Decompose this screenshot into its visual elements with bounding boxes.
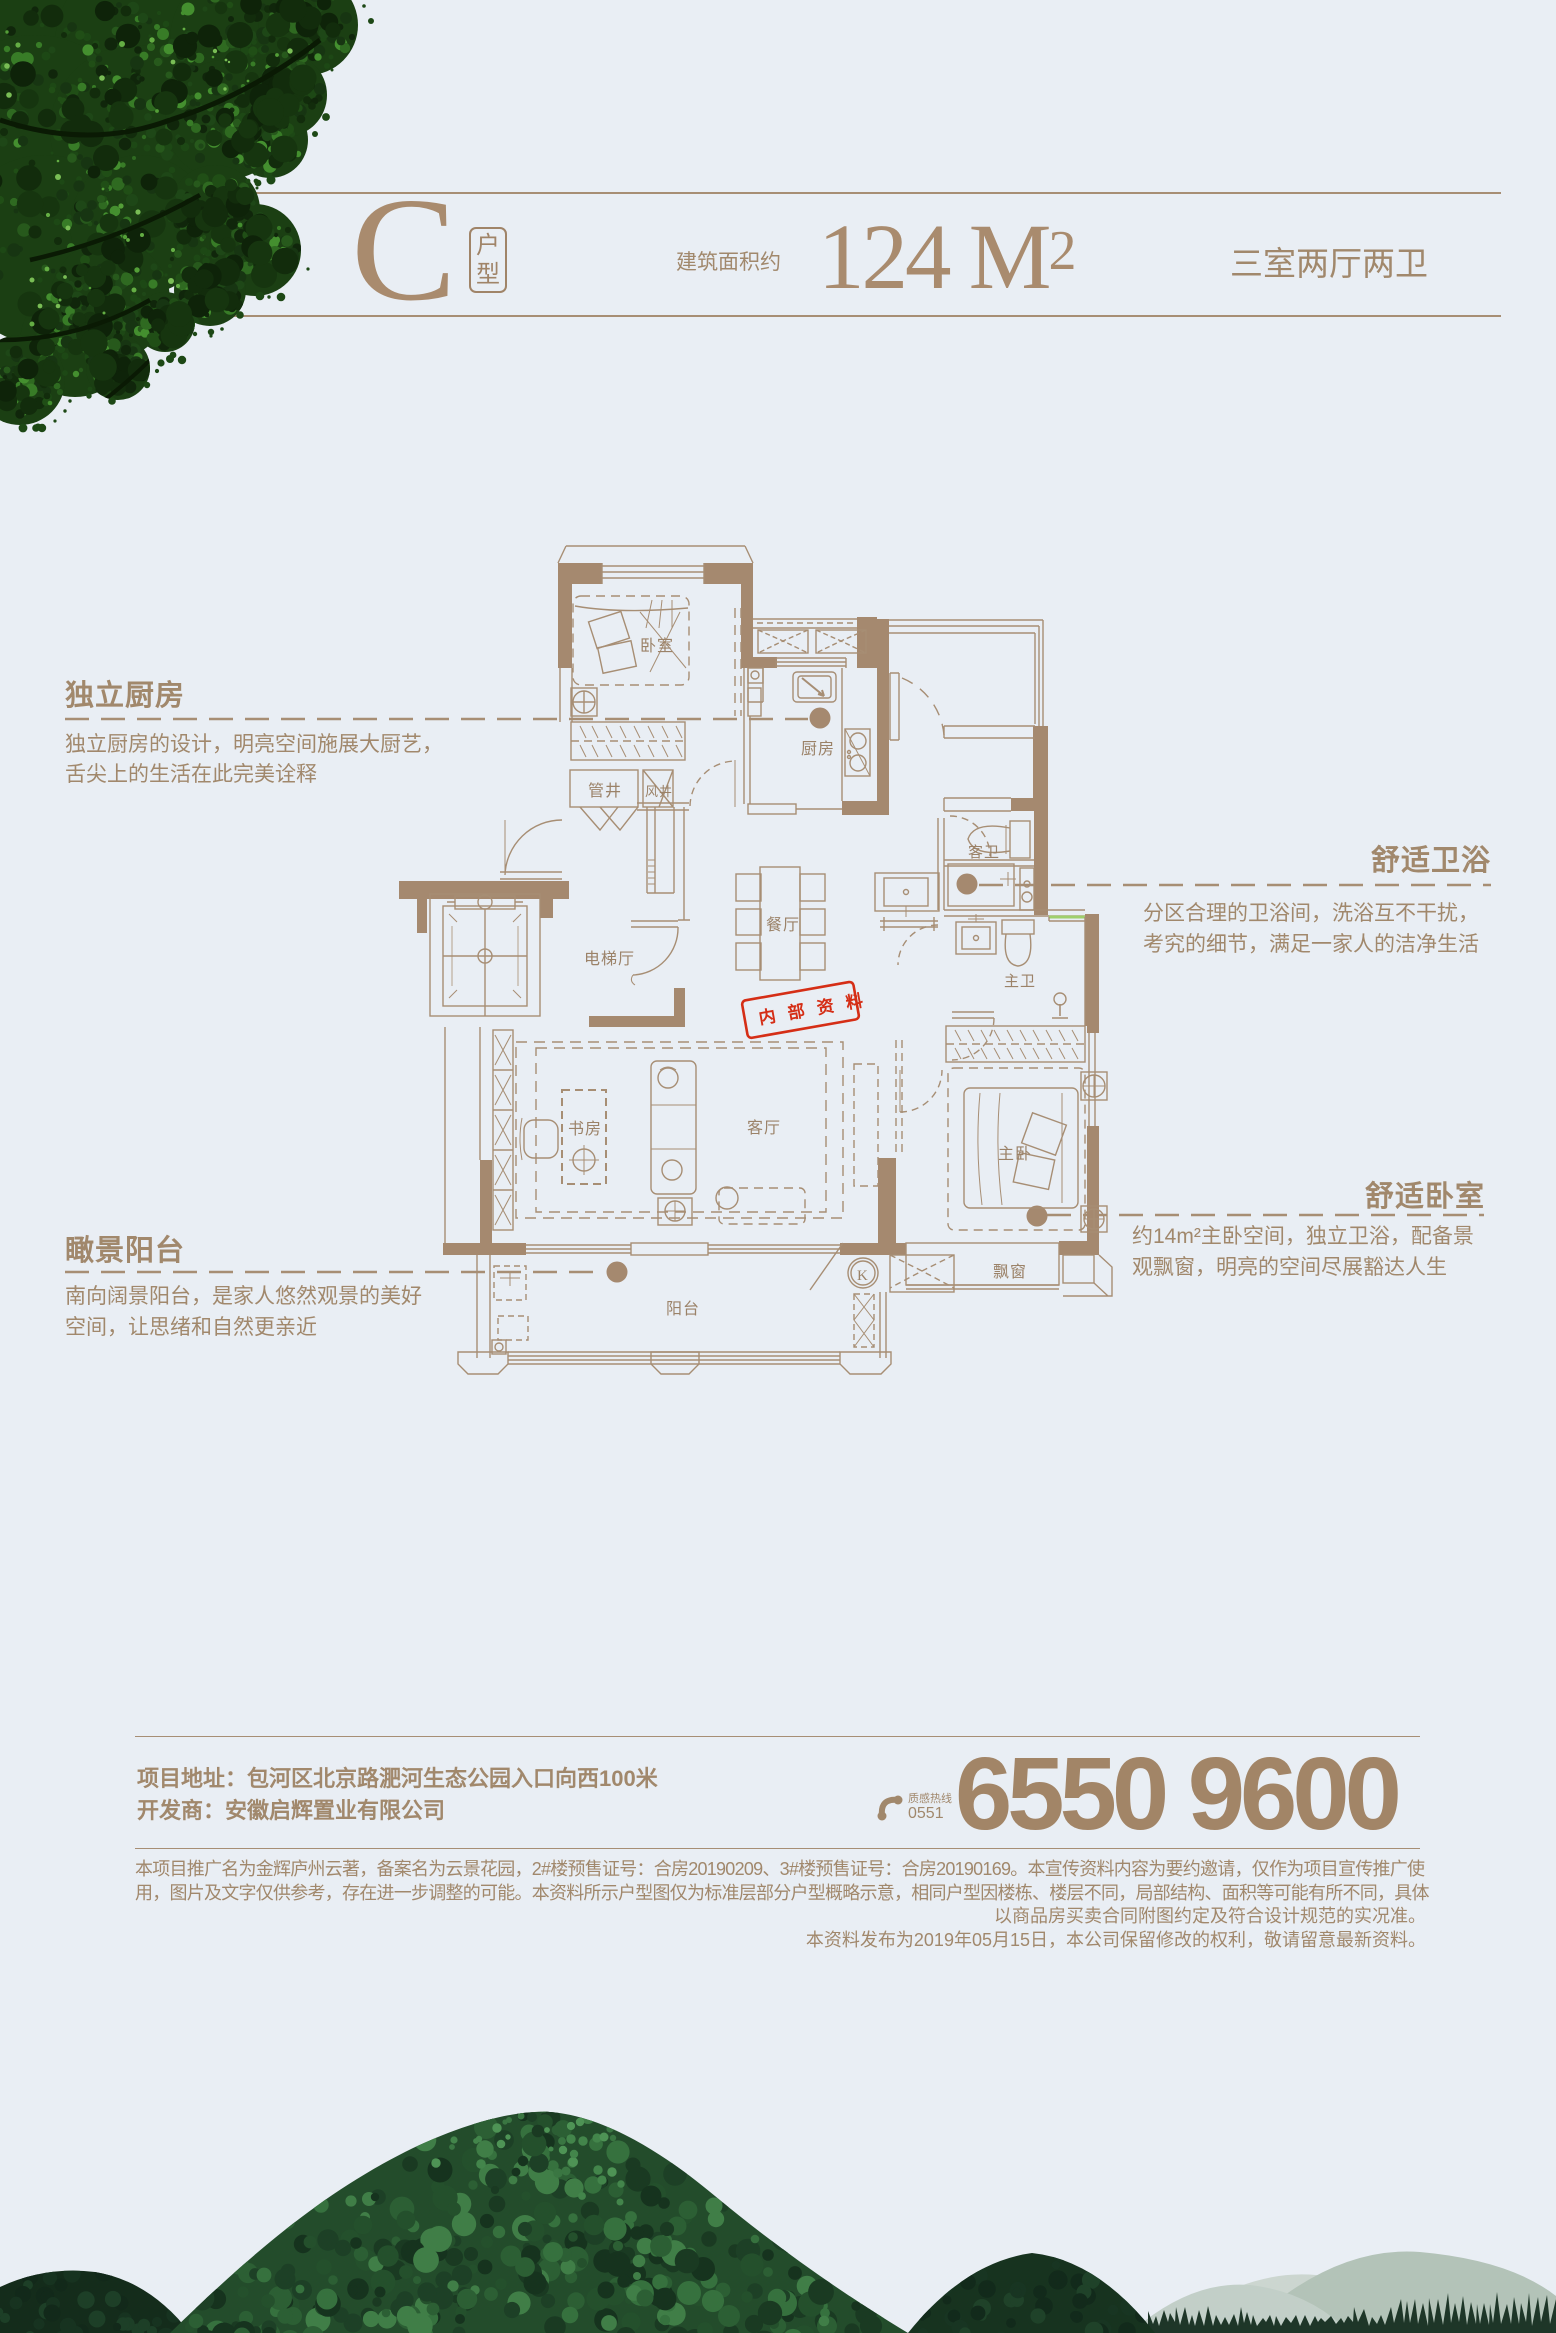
- svg-text:K: K: [857, 1268, 868, 1284]
- svg-text:主卧: 主卧: [998, 1145, 1032, 1163]
- svg-text:卧室: 卧室: [640, 637, 674, 655]
- svg-text:主卫: 主卫: [1004, 973, 1036, 990]
- svg-text:书房: 书房: [568, 1120, 602, 1138]
- svg-text:管井: 管井: [588, 782, 622, 800]
- svg-text:电梯厅: 电梯厅: [584, 950, 635, 968]
- svg-text:厨房: 厨房: [801, 740, 835, 758]
- svg-text:风井: 风井: [645, 784, 673, 799]
- svg-text:阳台: 阳台: [666, 1300, 700, 1318]
- svg-text:餐厅: 餐厅: [766, 916, 800, 934]
- svg-text:客厅: 客厅: [747, 1119, 781, 1137]
- svg-text:飘窗: 飘窗: [993, 1263, 1027, 1281]
- svg-text:客卫: 客卫: [968, 844, 1000, 861]
